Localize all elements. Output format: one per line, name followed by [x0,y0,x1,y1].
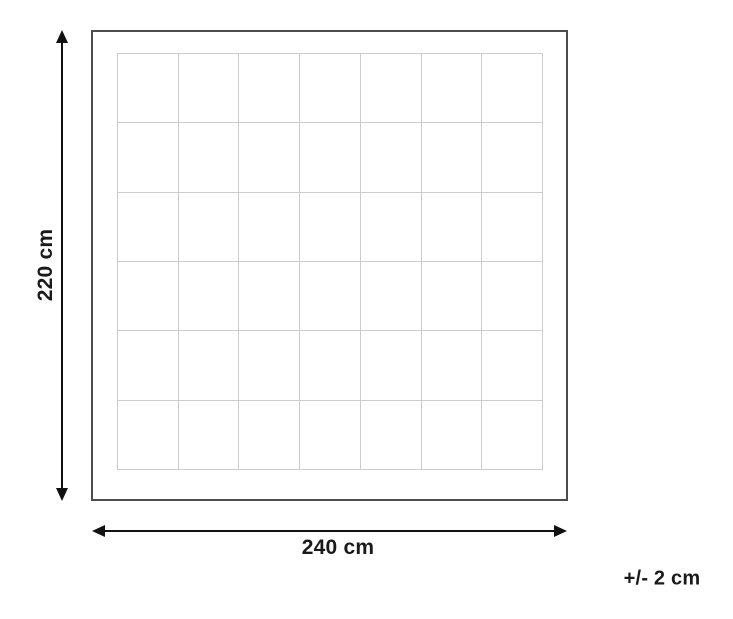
grid-cell [179,54,239,122]
grid-cell [239,54,299,122]
grid-cell [300,262,360,330]
grid-cell [118,262,178,330]
grid-cell [300,54,360,122]
grid-cell [361,262,421,330]
grid-cell [422,331,482,399]
grid-cell [118,193,178,261]
grid-cell [482,262,542,330]
grid-cell [300,193,360,261]
grid-cell [239,401,299,469]
tolerance-label: +/- 2 cm [624,568,701,591]
grid-cell [118,331,178,399]
arrow-right-icon [554,525,567,537]
grid-cell [482,331,542,399]
height-label: 220 cm [34,229,58,301]
grid-cell [179,262,239,330]
width-label: 240 cm [302,536,374,560]
grid-cell [361,401,421,469]
grid-cell [179,193,239,261]
grid-cell [422,401,482,469]
grid-cell [300,331,360,399]
grid-cell [239,262,299,330]
grid-cell [422,262,482,330]
grid-cell [239,193,299,261]
grid-cell [361,193,421,261]
grid-cell [422,123,482,191]
grid-cell [179,401,239,469]
product-dimension-diagram: 220 cm 240 cm +/- 2 cm [0,0,733,619]
grid-cell [118,54,178,122]
grid-cell [422,54,482,122]
grid-cell [361,54,421,122]
grid-cell [118,401,178,469]
grid-cell [361,123,421,191]
height-arrow-line [61,39,63,492]
width-arrow-line [101,530,558,532]
grid-cell [482,123,542,191]
grid-cell [482,401,542,469]
grid-cell [118,123,178,191]
grid-cell [482,54,542,122]
grid-cell [179,331,239,399]
grid-cell [361,331,421,399]
grid-cell [300,401,360,469]
grid-cell [300,123,360,191]
quilt-grid [117,53,543,470]
grid-cell [422,193,482,261]
grid-cell [239,331,299,399]
grid-cell [482,193,542,261]
product-outline [91,30,568,501]
arrow-down-icon [56,488,68,501]
grid-cell [179,123,239,191]
grid-cell [239,123,299,191]
